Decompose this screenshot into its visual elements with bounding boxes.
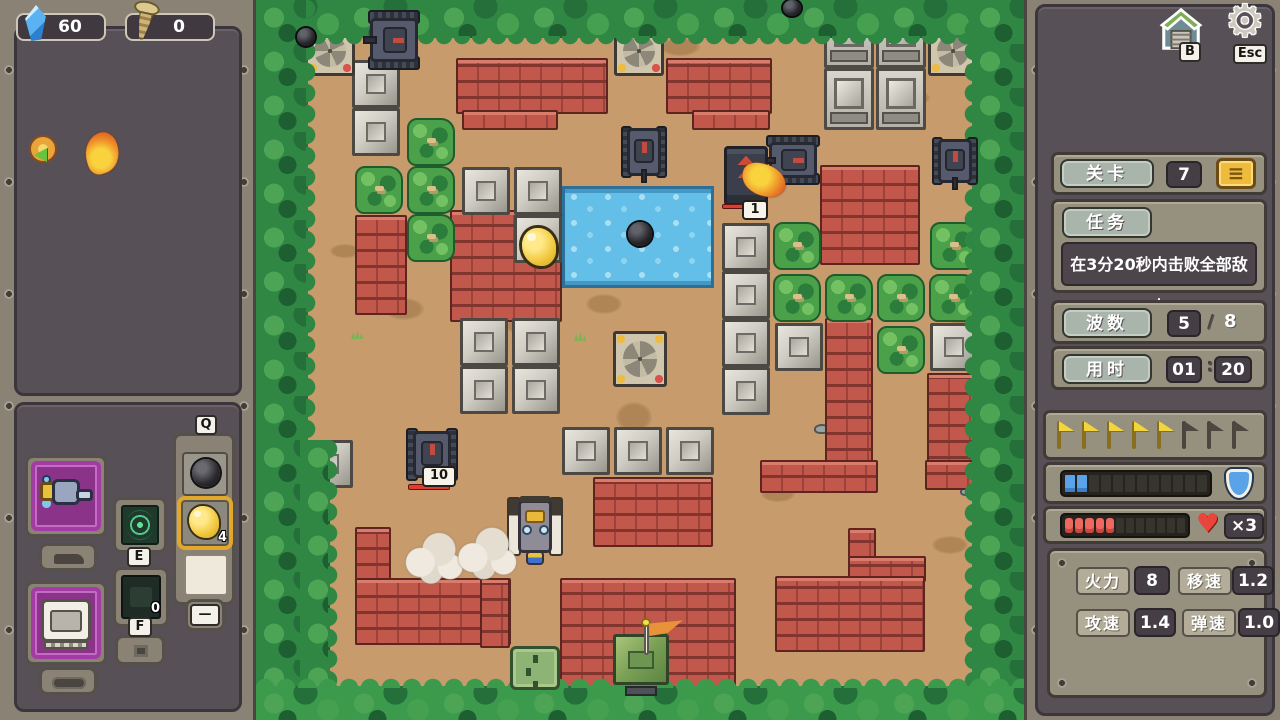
enemy-hp-badge: 1: [742, 200, 768, 220]
level-value: 7: [1166, 161, 1202, 188]
level-list-button[interactable]: ≡: [1216, 158, 1256, 189]
bar-segment: [1116, 518, 1124, 533]
brick: [825, 318, 873, 466]
dash-plate: —: [185, 599, 225, 631]
shield-bar: [1060, 470, 1212, 497]
skill-f-plate: [115, 635, 165, 665]
mission-text: 在3分20秒内击败全部敌人: [1061, 242, 1257, 286]
wave-flag-lit: [1104, 419, 1126, 451]
shield-row: [1043, 462, 1267, 504]
gear-icon: ⚙: [1225, 0, 1264, 47]
key-q[interactable]: Q: [195, 415, 217, 435]
bar-segment: [1113, 475, 1123, 492]
time-colon: :: [1206, 355, 1213, 376]
bar-segment: [1096, 518, 1104, 533]
weapon-slot-frame: [25, 455, 107, 537]
left-panel: 60 0: [0, 0, 256, 720]
skill-f-count: 0: [151, 601, 160, 616]
bush: [407, 118, 455, 166]
weapon-slot[interactable]: [31, 461, 101, 531]
bar-segment: [1185, 475, 1195, 492]
wave-flag-lit: [1079, 419, 1101, 451]
battlefield[interactable]: 110: [256, 0, 1024, 720]
hatch-door: [510, 646, 560, 690]
bush: [407, 166, 455, 214]
key-esc[interactable]: Esc: [1233, 44, 1267, 64]
key-b[interactable]: B: [1179, 42, 1201, 62]
bar-segment: [1149, 475, 1159, 492]
mine: [297, 28, 315, 46]
spawner-fan: [613, 331, 667, 387]
wave-flag-unlit: [1179, 419, 1201, 451]
time-label: 用时: [1062, 354, 1152, 384]
bar-segment: [1197, 475, 1207, 492]
bush: [825, 274, 873, 322]
bar-segment: [1075, 518, 1083, 533]
bigmetal: [824, 68, 874, 130]
metal: [462, 167, 510, 215]
stat-movespeed-label: 移速: [1178, 567, 1232, 595]
grass: [351, 330, 363, 339]
enemy-tank: [366, 10, 422, 70]
metal: [722, 223, 770, 271]
wave-flag-unlit: [1229, 419, 1251, 451]
bar-segment: [1167, 518, 1175, 533]
brick: [775, 576, 925, 652]
bar-segment: [1161, 475, 1171, 492]
bigmetal: [876, 68, 926, 130]
skill-e-frame: [113, 497, 167, 553]
metal: [775, 323, 823, 371]
gold-item-count: 4: [218, 530, 227, 545]
grass: [574, 332, 586, 341]
lives-count: ×3: [1224, 513, 1264, 539]
wave-flag-lit: [1154, 419, 1176, 451]
wave-label: 波数: [1062, 308, 1152, 338]
return-buff-icon: [31, 137, 55, 161]
metal: [514, 167, 562, 215]
bar-segment: [1177, 518, 1185, 533]
bar-segment: [1136, 518, 1144, 533]
radar-icon: [121, 505, 159, 545]
hull-slot-frame: [25, 581, 107, 665]
hull-icon: [35, 591, 97, 655]
bar-segment: [1085, 518, 1093, 533]
bush: [773, 222, 821, 270]
bush: [355, 166, 403, 214]
hp-row: ♥ ×3: [1043, 506, 1267, 544]
flame-buff-icon: [80, 129, 125, 178]
mine: [628, 222, 652, 246]
metal: [722, 271, 770, 319]
tracks-plate: [39, 667, 97, 695]
q-item-column: 4: [173, 433, 235, 605]
stat-movespeed-value: 1.2: [1232, 566, 1274, 595]
metal: [614, 427, 662, 475]
wave-separator: /: [1207, 311, 1214, 332]
stat-firepower-value: 8: [1134, 566, 1170, 595]
item-slot-bomb[interactable]: [182, 452, 228, 496]
metal: [722, 319, 770, 367]
stat-bulletspeed-value: 1.0: [1238, 608, 1280, 637]
weapon-type-plate: [39, 543, 97, 571]
bar-segment: [1065, 475, 1075, 492]
enemy-tank: [621, 124, 667, 180]
game-screen: 60 0: [0, 0, 1280, 720]
bomb-item-icon: [192, 459, 220, 487]
gold-drop: [522, 228, 556, 266]
metal: [460, 318, 508, 366]
brick: [666, 58, 772, 114]
bar-segment: [1089, 475, 1099, 492]
enemy-tank: [932, 135, 978, 187]
loadout-panel: E 0 F Q 4 —: [14, 402, 242, 712]
bush: [773, 274, 821, 322]
key-f[interactable]: F: [128, 617, 152, 637]
bar-segment: [1146, 518, 1154, 533]
brick: [593, 477, 713, 547]
module-icon: [134, 645, 148, 657]
item-slot-empty[interactable]: [184, 554, 228, 596]
tank-silhouette-icon: [54, 554, 84, 564]
time-minutes: 01: [1166, 356, 1202, 383]
bar-segment: [1106, 518, 1114, 533]
key-e[interactable]: E: [127, 547, 151, 567]
dash-key[interactable]: —: [190, 604, 220, 626]
stat-bulletspeed-label: 弹速: [1182, 609, 1236, 637]
tracks-icon: [52, 677, 86, 689]
wave-flags-row: [1043, 410, 1267, 460]
level-row: 关卡 7 ≡: [1051, 152, 1267, 195]
wave-total: 8: [1224, 311, 1237, 332]
stat-attackspeed-label: 攻速: [1076, 609, 1130, 637]
wave-flag-lit: [1054, 419, 1076, 451]
smoke: [455, 524, 519, 580]
level-label: 关卡: [1060, 159, 1154, 188]
metal: [722, 367, 770, 415]
brick: [692, 110, 770, 130]
bar-segment: [1173, 475, 1183, 492]
bar-segment: [1157, 518, 1165, 533]
mission-label: 任务: [1062, 207, 1152, 238]
bar-segment: [1126, 518, 1134, 533]
bar-segment: [1065, 518, 1073, 533]
cannon-icon: [35, 465, 97, 527]
time-seconds: 20: [1214, 356, 1252, 383]
mission-row: 任务 在3分20秒内击败全部敌人: [1051, 199, 1267, 293]
hull-slot[interactable]: [31, 587, 101, 659]
heart-icon: ♥: [1196, 513, 1219, 535]
wave-current: 5: [1167, 310, 1201, 337]
time-row: 用时 01 : 20: [1051, 346, 1267, 390]
brick: [760, 460, 878, 493]
mine: [783, 0, 801, 16]
bar-segment: [1077, 475, 1087, 492]
stat-attackspeed-value: 1.4: [1134, 608, 1176, 637]
stats-box: 火力 8 移速 1.2 攻速 1.4 弹速 1.0: [1047, 548, 1267, 698]
shield-icon: [1226, 469, 1252, 498]
base-flag-block: [612, 626, 670, 696]
brick: [480, 578, 510, 648]
brick: [462, 110, 558, 130]
brick: [820, 165, 920, 265]
resources-panel: 60 0: [14, 26, 242, 396]
metal: [666, 427, 714, 475]
wave-flag-lit: [1129, 419, 1151, 451]
right-panel: B ⚙ Esc 关卡 7 ≡ 任务 在3分20秒内击败全部敌人 波数 5 / 8…: [1024, 0, 1280, 720]
item-slot-gold-selected[interactable]: 4: [177, 496, 233, 550]
brick: [848, 528, 876, 558]
brick: [456, 58, 608, 114]
gold-item-icon: [189, 506, 219, 538]
metal: [562, 427, 610, 475]
wave-flag-unlit: [1204, 419, 1226, 451]
stat-firepower-label: 火力: [1076, 567, 1130, 595]
trees-right: [972, 0, 1024, 720]
spot: [586, 294, 622, 314]
bar-segment: [1125, 475, 1135, 492]
metal: [352, 108, 400, 156]
brick: [355, 215, 407, 315]
bar-segment: [1137, 475, 1147, 492]
bar-segment: [1101, 475, 1111, 492]
metal: [512, 318, 560, 366]
metal: [512, 366, 560, 414]
bush: [877, 326, 925, 374]
wave-row: 波数 5 / 8: [1051, 300, 1267, 344]
bush: [407, 214, 455, 262]
bush: [877, 274, 925, 322]
hp-bar: [1060, 513, 1190, 538]
metal: [460, 366, 508, 414]
enemy-hp-badge: 10: [422, 466, 456, 487]
